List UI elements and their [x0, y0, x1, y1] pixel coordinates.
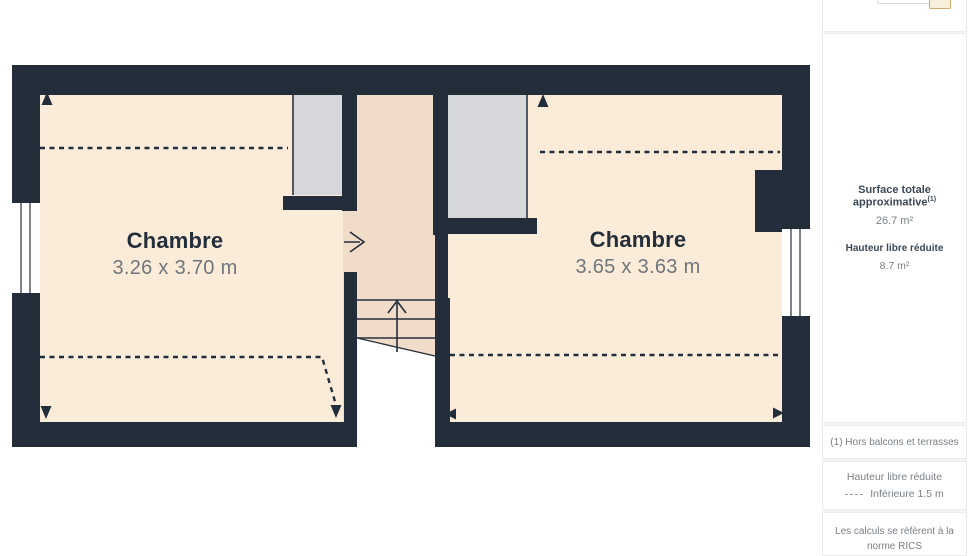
surface-total-text: Surface totale approximative: [853, 184, 931, 209]
wall-right-of-corridor: [433, 95, 448, 235]
wall-left-of-corridor: [342, 95, 357, 211]
floorplan-drawing: [0, 0, 820, 548]
legend-item-text: Inférieure 1.5 m: [870, 488, 944, 500]
reduced-height-value: 8.7 m²: [880, 260, 910, 272]
dashed-line-swatch-icon: [845, 494, 863, 495]
toolbar-button-partial[interactable]: [877, 0, 931, 4]
surface-stats-card: Surface totale approximative(1) 26.7 m² …: [822, 33, 967, 423]
legend-item: Inférieure 1.5 m: [845, 488, 944, 500]
info-sidebar: Surface totale approximative(1) 26.7 m² …: [822, 0, 967, 548]
floorplan-canvas: Chambre 3.26 x 3.70 m Chambre 3.65 x 3.6…: [0, 0, 820, 548]
disclaimer-card: Les calculs se réfèrent à la norme RICS …: [822, 512, 967, 556]
legend-title: Hauteur libre réduite: [847, 471, 942, 483]
disclaimer-line1: Les calculs se réfèrent à la norme RICS: [823, 525, 966, 554]
wall-under-left-closet: [283, 196, 357, 210]
surface-footnote-marker: (1): [928, 196, 937, 203]
legend-card: Hauteur libre réduite Inférieure 1.5 m: [822, 461, 967, 510]
surface-total-value: 26.7 m²: [876, 215, 913, 227]
left-closet: [292, 95, 343, 195]
footnote-text: (1) Hors balcons et terrasses: [830, 437, 958, 448]
footnote-card: (1) Hors balcons et terrasses: [822, 425, 967, 459]
toolbar-button-active-partial[interactable]: [929, 0, 951, 9]
right-closet: [448, 95, 528, 218]
stair-void: [357, 338, 435, 447]
left-window-icon: [12, 203, 40, 293]
stair-left-wall: [344, 272, 357, 447]
stair-right-wall: [435, 298, 450, 447]
right-window-icon: [782, 229, 810, 316]
surface-total-label: Surface totale approximative(1): [823, 184, 966, 209]
sidebar-toolbar: [822, 0, 967, 32]
wall-under-right-closet: [435, 218, 537, 234]
reduced-height-label: Hauteur libre réduite: [846, 243, 944, 254]
right-wall-block: [755, 170, 810, 232]
